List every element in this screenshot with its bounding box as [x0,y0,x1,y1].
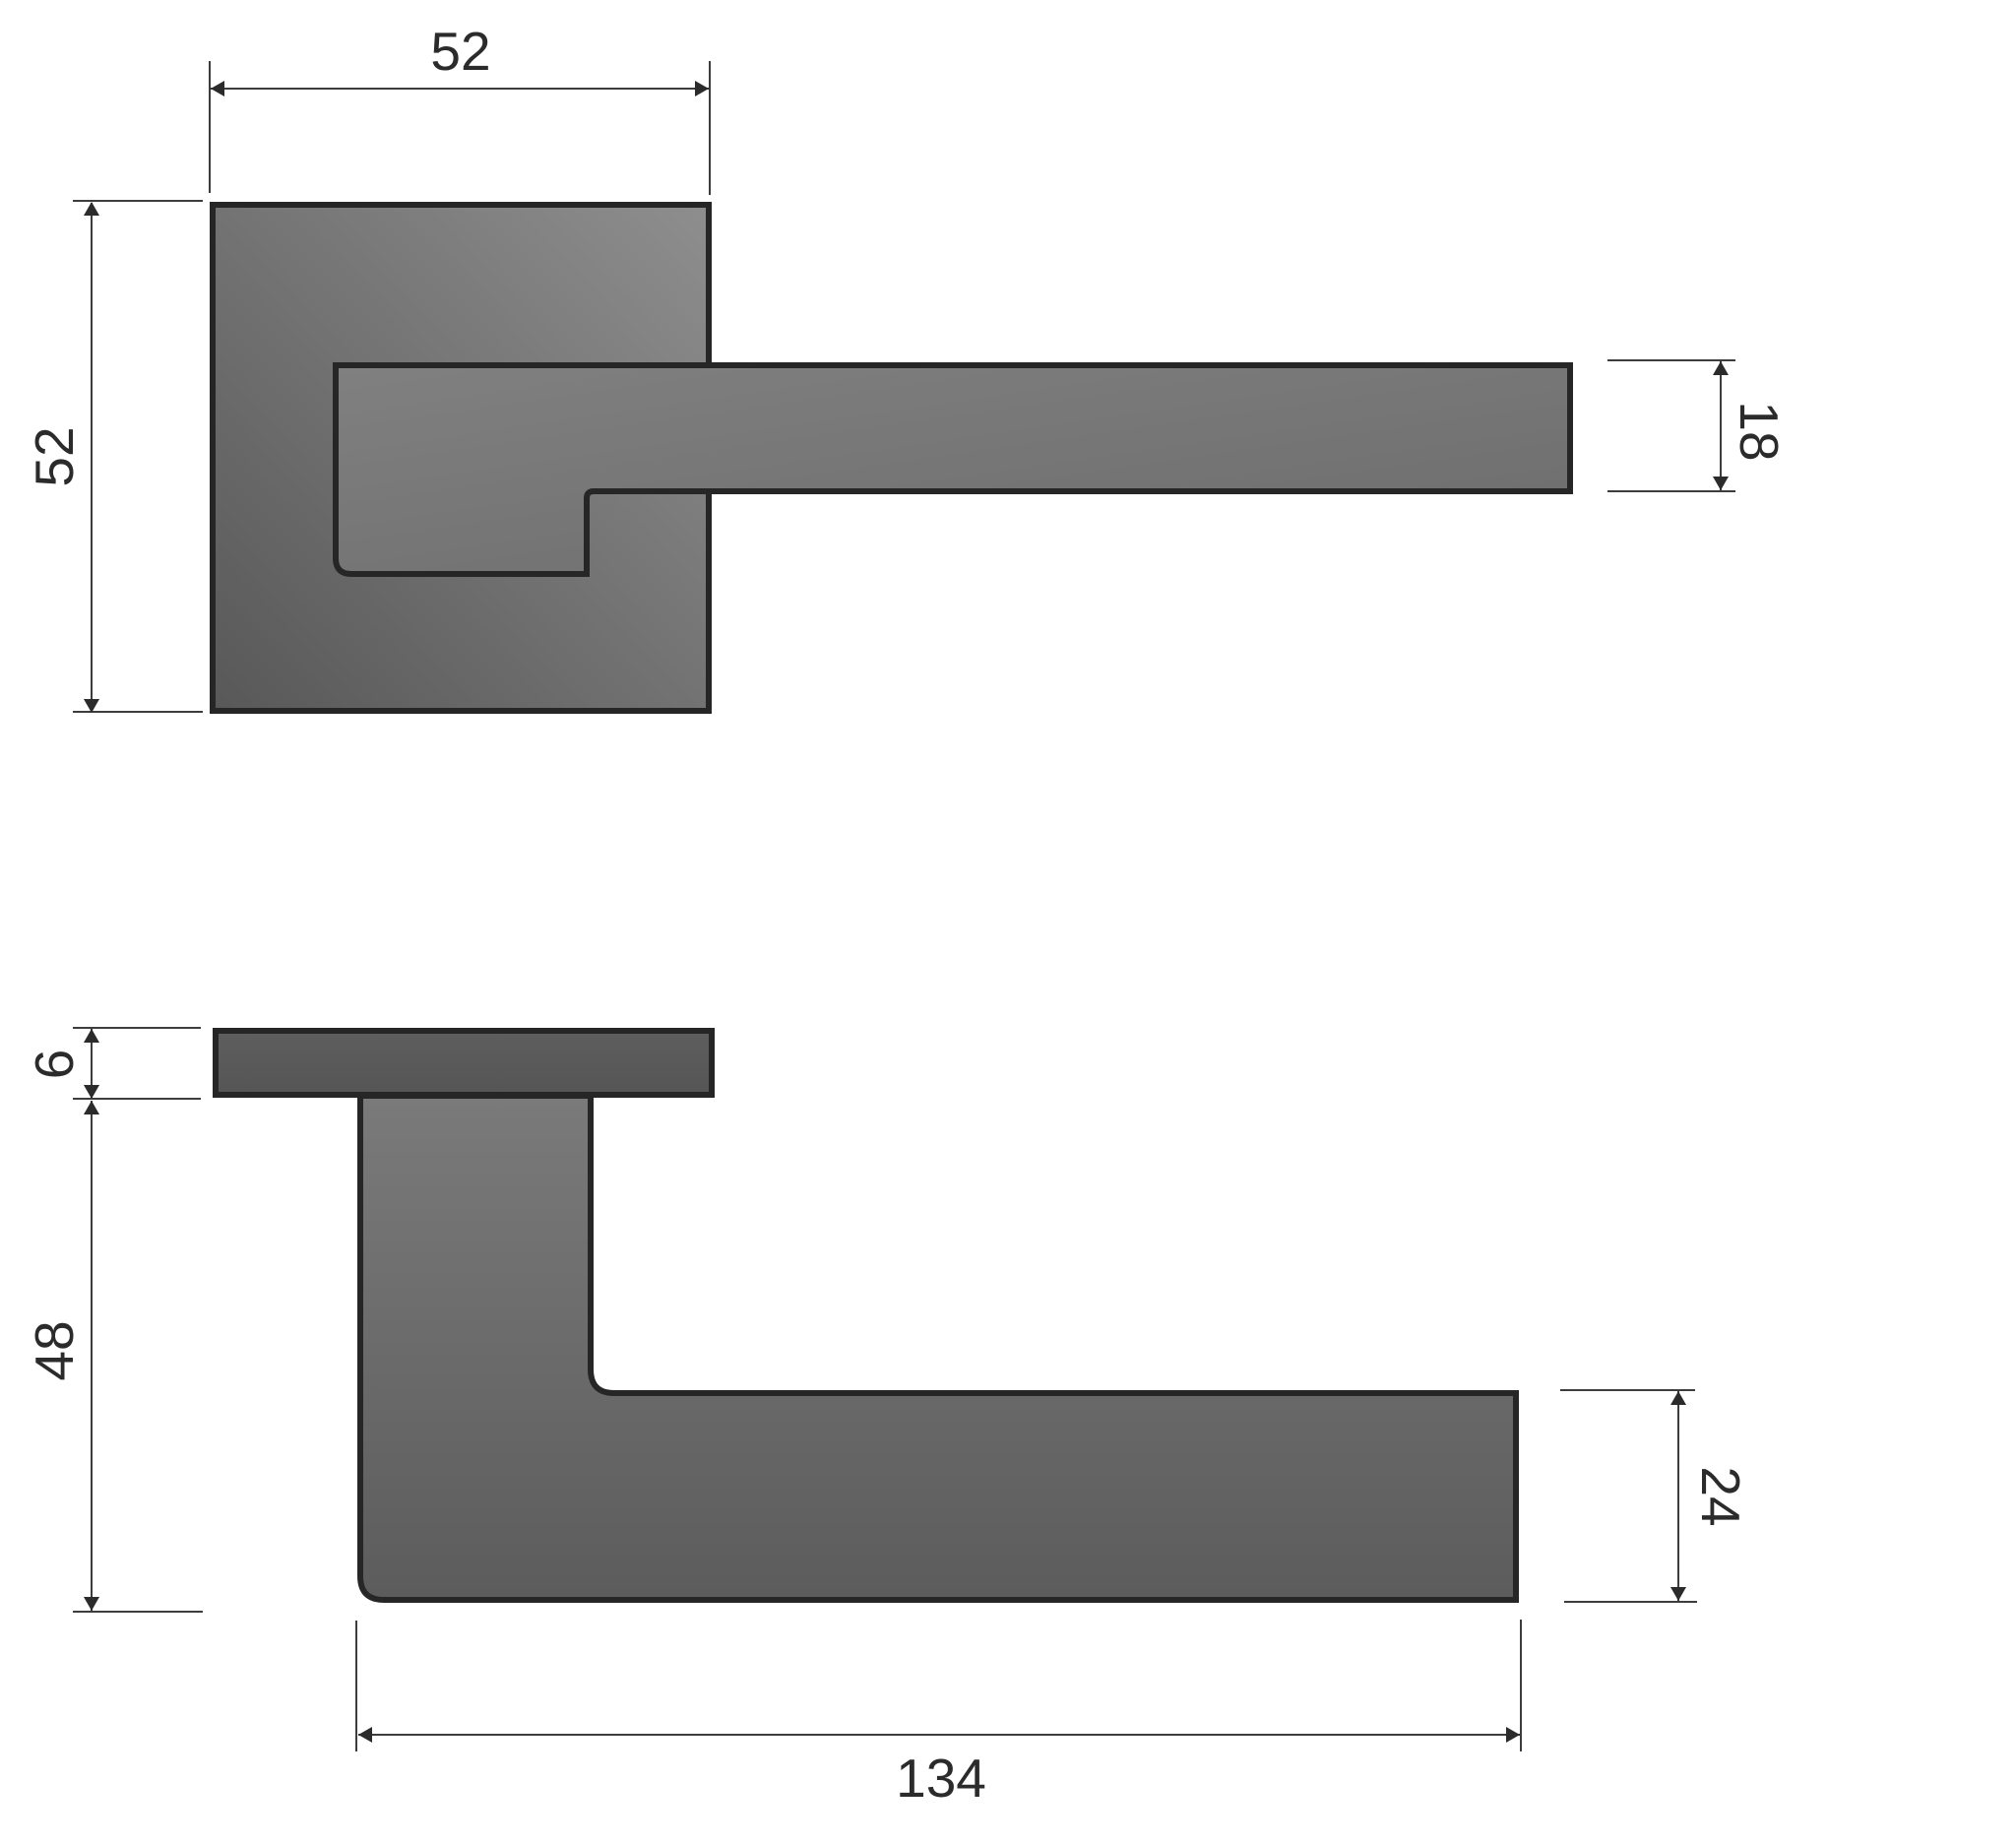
svg-text:24: 24 [1690,1466,1751,1526]
svg-text:48: 48 [24,1320,85,1380]
svg-text:52: 52 [430,21,490,82]
svg-text:18: 18 [1729,401,1790,461]
svg-text:6: 6 [24,1050,85,1080]
svg-text:134: 134 [896,1748,986,1809]
svg-text:52: 52 [24,426,85,486]
